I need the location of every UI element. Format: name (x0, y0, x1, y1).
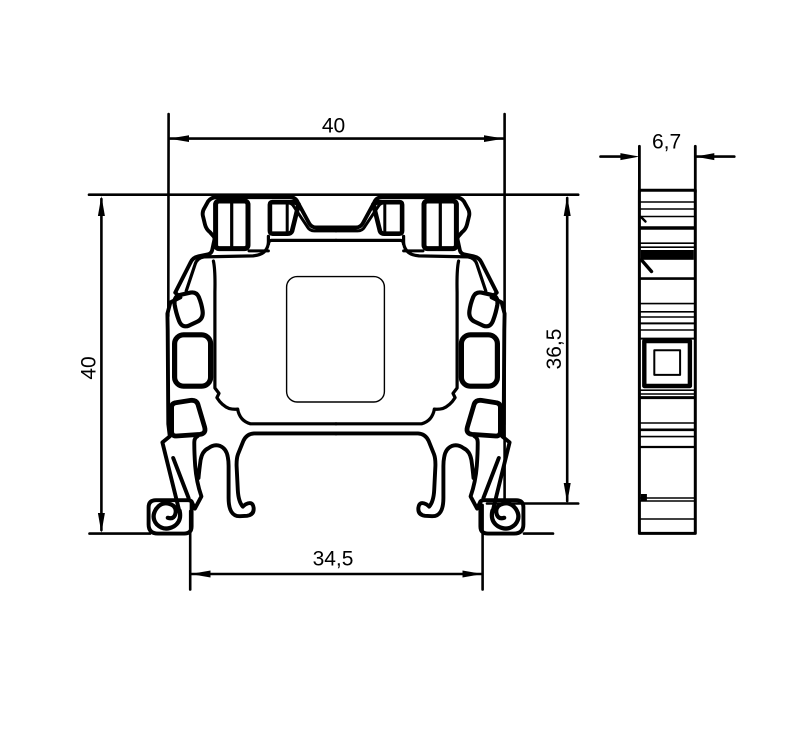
svg-text:36,5: 36,5 (543, 329, 566, 370)
svg-text:6,7: 6,7 (652, 131, 681, 154)
svg-text:40: 40 (77, 356, 100, 379)
svg-text:34,5: 34,5 (313, 548, 354, 571)
svg-text:40: 40 (322, 115, 345, 138)
